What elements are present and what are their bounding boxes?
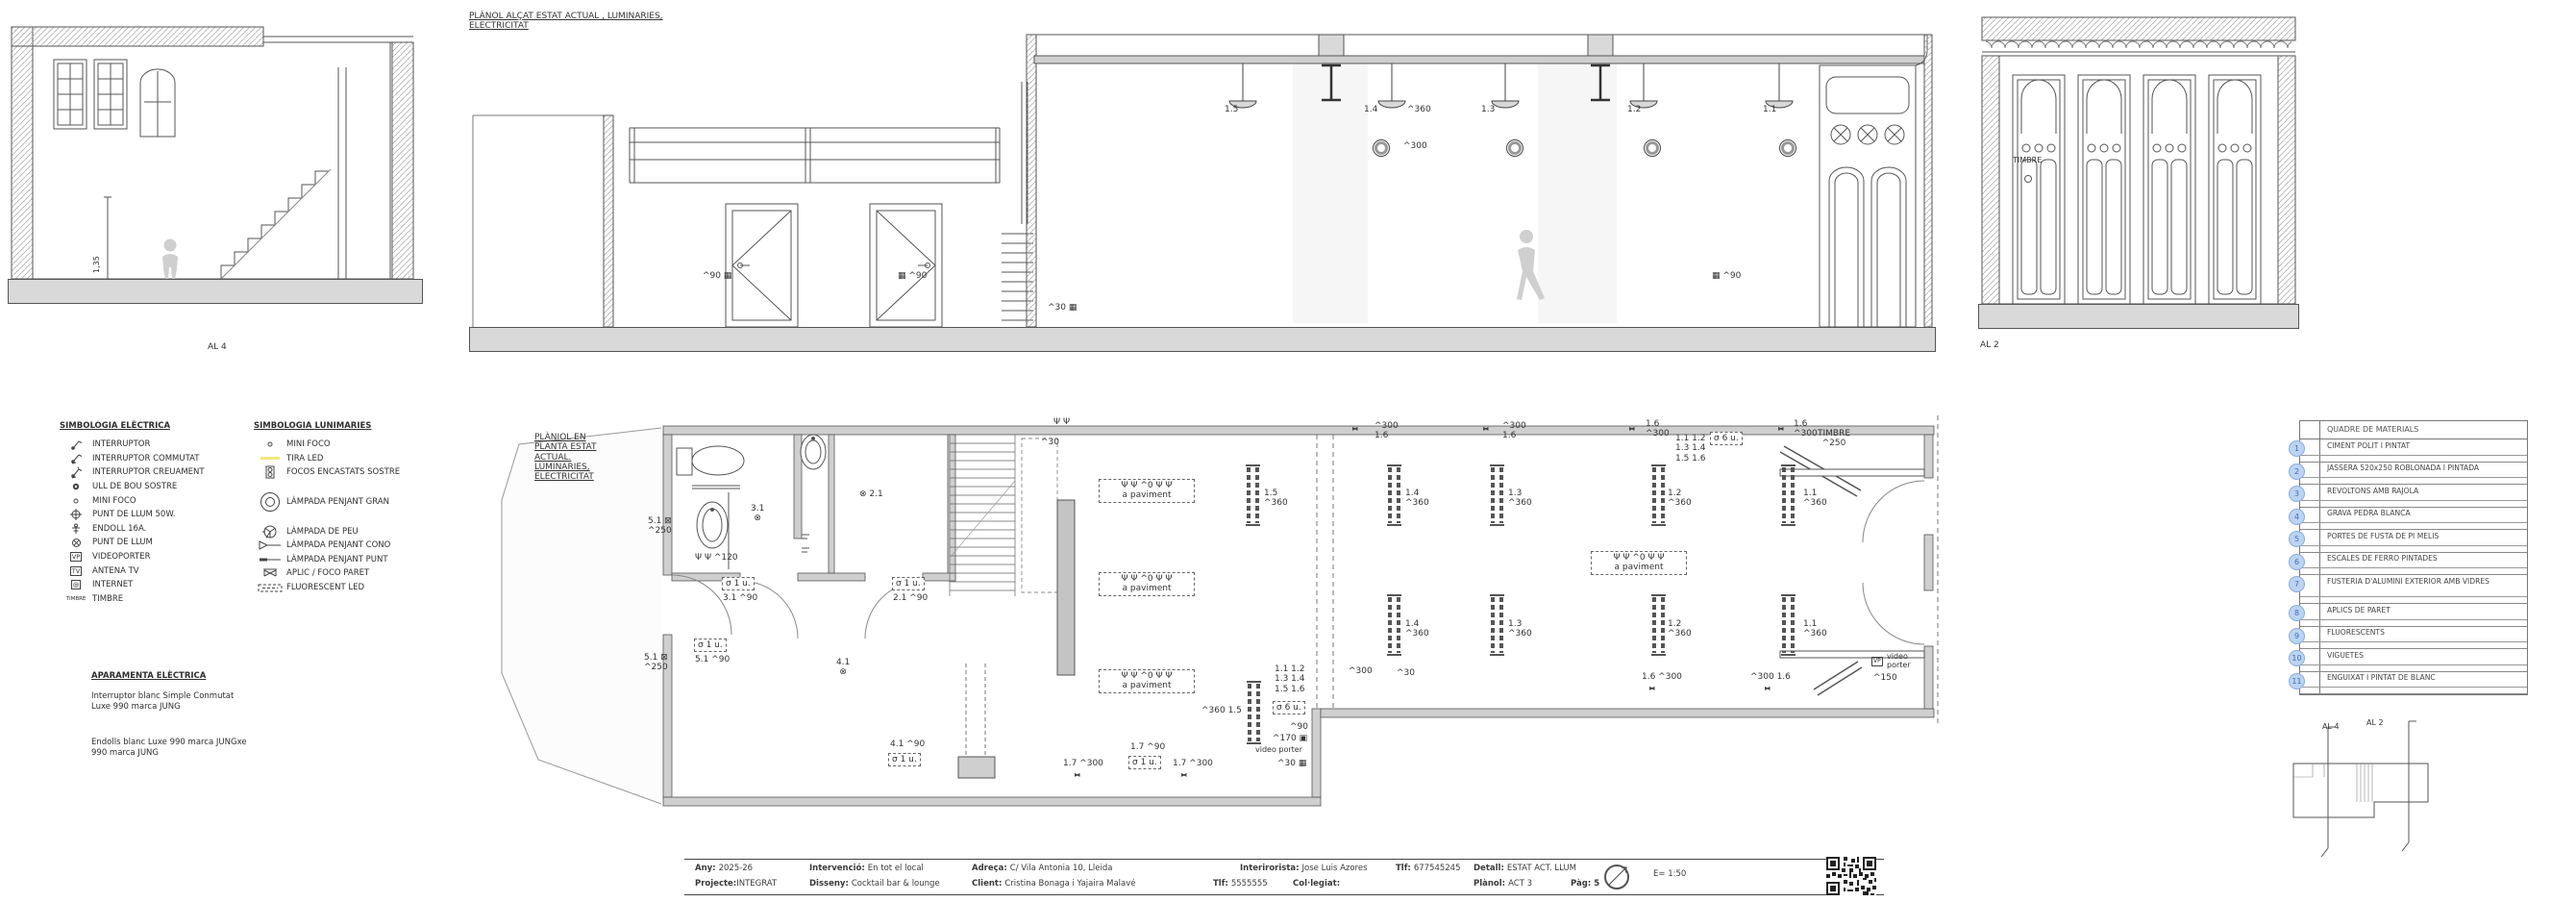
plan-annotation: ^30 bbox=[1397, 668, 1415, 678]
sheet-annotation: TIMBRE bbox=[2013, 156, 2042, 164]
aparamenta-paragraph-1: Interruptor blanc Simple Conmutat Luxe 9… bbox=[91, 691, 255, 713]
sheet-annotation: AL 2 bbox=[1980, 340, 1999, 350]
material-number-badge: 10 bbox=[2289, 650, 2305, 666]
door-1 bbox=[726, 204, 798, 327]
plan-annotation: ^360 1.5 bbox=[1201, 706, 1242, 715]
sheet-annotation: 1.2 bbox=[1627, 105, 1641, 114]
section-line-al4 bbox=[2321, 727, 2336, 857]
plan-annotation: 1.2 ^360 bbox=[1668, 489, 1692, 509]
materials-table-title: QUADRE DE MATERIALS bbox=[2300, 421, 2527, 439]
opening-band-1 bbox=[1293, 63, 1368, 323]
fluorescent-strip-symbol bbox=[1246, 464, 1260, 526]
fluorescent-strip-symbol bbox=[1490, 594, 1504, 656]
sheet-annotation: ^300 bbox=[1403, 141, 1427, 151]
title-block: Any:2025-26 Projecte:INTEGRAT Intervenci… bbox=[684, 859, 1884, 895]
plan-annotation: Ψ Ψ ^0 Ψ Ψ a paviment bbox=[1099, 669, 1195, 693]
legend-item-label: LÀMPADA PENJANT CONO bbox=[286, 540, 390, 550]
legend-item-label: ULL DE BOU SOSTRE bbox=[92, 482, 177, 491]
plan-annotation: 1.2 ^360 bbox=[1668, 619, 1692, 639]
sheet-annotation: ^90 ▦ bbox=[703, 271, 731, 281]
legend-item: INTERRUPTOR CREUAMENT bbox=[60, 465, 205, 480]
sheet-annotation: ^30 ▦ bbox=[1048, 303, 1077, 313]
fluorescent-strip-symbol bbox=[1387, 464, 1401, 526]
pier-left bbox=[1982, 56, 1999, 304]
sheet-annotation: 1,35 bbox=[92, 256, 101, 273]
plan-annotation: ▸◂ bbox=[1352, 424, 1355, 433]
material-label: ENGUIXAT I PINTAT DE BLANC bbox=[2327, 674, 2523, 682]
legend-item: PUNT DE LLUM bbox=[60, 536, 205, 550]
wall-right-pier bbox=[392, 42, 413, 279]
material-label: PORTES DE FUSTA DE PI MELIS bbox=[2327, 533, 2523, 540]
plan-annotation: TIMBRE ^250 bbox=[1818, 429, 1850, 449]
drawing-sheet: SIMBOLOGIA ELÈCTRICA INTERRUPTOR INTERRU… bbox=[0, 0, 2576, 902]
legend-item-label: MINI FOCO bbox=[286, 439, 331, 449]
pier-right bbox=[2278, 56, 2295, 304]
material-row: 8 APLICS DE PARET bbox=[2300, 604, 2527, 627]
door-2 bbox=[870, 204, 942, 327]
material-number-badge: 7 bbox=[2289, 576, 2305, 592]
legend-electric-title: SIMBOLOGIA ELÈCTRICA bbox=[60, 421, 205, 431]
material-row: 1 CIMENT POLIT I PINTAT bbox=[2300, 439, 2527, 463]
material-row: 7 FUSTERIA D'ALUMINI EXTERIOR AMB VIDRES bbox=[2300, 575, 2527, 604]
plan-annotation: 1.7 ^300 bbox=[1063, 759, 1103, 768]
legend-item-label: INTERNET bbox=[92, 580, 133, 589]
section-line-al2 bbox=[2402, 721, 2416, 851]
plan-annotation: Ψ Ψ ^0 Ψ Ψ a paviment bbox=[1099, 572, 1195, 596]
north-arrow-icon bbox=[1602, 863, 1631, 891]
legend-item-label: VIDEOPORTER bbox=[92, 552, 151, 562]
plan-annotation: σ 1 u. bbox=[892, 577, 925, 590]
material-row: 6 ESCALES DE FERRO PINTADES bbox=[2300, 553, 2527, 576]
party-wall-boundary bbox=[502, 428, 661, 804]
plan-annotation: Ψ Ψ ^0 Ψ Ψ a paviment bbox=[1591, 551, 1687, 575]
cornice-lines bbox=[1982, 52, 2295, 56]
floor-plan-drawing bbox=[498, 413, 1940, 817]
plan-annotation: 3.1 ^90 bbox=[723, 593, 757, 603]
key-plan-stairs bbox=[2357, 764, 2372, 802]
fluorescent-strip-symbol bbox=[1247, 681, 1261, 744]
plan-annotation: 5.1 ⊠ ^250 bbox=[644, 653, 668, 673]
plan-annotation: video porter bbox=[1255, 745, 1302, 754]
material-row: 11 ENGUIXAT I PINTAT DE BLANC bbox=[2300, 672, 2527, 695]
sheet-annotation: 1.4 bbox=[1364, 105, 1377, 114]
plan-annotation: 4.1 ^90 bbox=[890, 739, 925, 749]
legend-item: INTERRUPTOR COMMUTAT bbox=[60, 452, 205, 466]
titleblock-tlf1: Tlf:5555555 bbox=[1213, 879, 1268, 889]
section-drawing bbox=[469, 27, 1936, 327]
plan-annotation: 1.1 1.2 1.3 1.4 1.5 1.6 bbox=[1675, 434, 1706, 464]
legend-item-label: PUNT DE LLUM bbox=[92, 538, 153, 547]
wall-cut-right bbox=[1924, 35, 1932, 327]
roof-hatch bbox=[1982, 17, 2295, 40]
legend-item: MINI FOCO bbox=[60, 493, 205, 508]
sheet-annotation: AL 2 bbox=[2366, 718, 2384, 727]
legend-item-label: ENDOLL 16A. bbox=[92, 524, 146, 534]
plan-annotation: 2.1 ^90 bbox=[893, 593, 928, 603]
plan-annotation: ▸◂ bbox=[1483, 424, 1486, 433]
legend-item: TV ANTENA TV bbox=[60, 564, 205, 578]
sheet-annotation: PLÀNOL ALÇAT ESTAT ACTUAL , LUMINARIES, … bbox=[469, 12, 663, 32]
fluorescent-strip-symbol bbox=[1651, 594, 1666, 656]
sheet-annotation: AL 4 bbox=[2322, 722, 2340, 731]
plan-annotation: 4.1 ⊗ bbox=[836, 658, 850, 678]
stairs-plan bbox=[950, 435, 1057, 596]
material-label: FUSTERIA D'ALUMINI EXTERIOR AMB VIDRES bbox=[2327, 578, 2523, 586]
key-plan-rooms bbox=[2293, 764, 2324, 777]
legend-item: INTERRUPTOR bbox=[60, 438, 205, 452]
titleblock-projecte: Projecte:INTEGRAT bbox=[695, 879, 777, 889]
material-label: ESCALES DE FERRO PINTADES bbox=[2327, 555, 2523, 563]
stair-base-wall bbox=[958, 757, 995, 778]
plan-annotation: ^90 bbox=[1290, 722, 1308, 732]
material-row: 10 VIGUETES bbox=[2300, 649, 2527, 672]
legend-item-label: LÀMPADA PENJANT PUNT bbox=[286, 555, 388, 564]
plan-annotation: 1.4 ^360 bbox=[1405, 619, 1429, 639]
material-label: GRAVA PEDRA BLANCA bbox=[2327, 510, 2523, 517]
roof-tiles bbox=[1986, 40, 2291, 52]
plan-annotation: ^170 ▣ bbox=[1273, 734, 1307, 743]
plan-annotation: 5.1 ⊠ ^250 bbox=[648, 516, 672, 537]
titleblock-any: Any:2025-26 bbox=[695, 864, 753, 873]
fluorescent-strip-symbol bbox=[1387, 594, 1401, 656]
sheet-annotation: 1.3 bbox=[1481, 105, 1495, 114]
plan-annotation: video porter bbox=[1887, 652, 1911, 669]
plan-annotation: 1.7 ^90 bbox=[1130, 742, 1165, 752]
plan-annotation: 1.1 ^360 bbox=[1803, 619, 1827, 639]
legend-item: FOCOS ENCASTATS SOSTRE bbox=[254, 465, 400, 480]
material-row: 5 PORTES DE FUSTA DE PI MELIS bbox=[2300, 530, 2527, 553]
material-label: JASSERA 520x250 ROBLONADA I PINTADA bbox=[2327, 464, 2523, 472]
ground-strip-al2 bbox=[1978, 304, 2299, 329]
plan-annotation: 1.6 ^300 bbox=[1646, 419, 1670, 439]
plan-annotation: ▸◂ bbox=[1181, 770, 1184, 779]
legend-item-label: MINI FOCO bbox=[92, 496, 136, 506]
material-row: 3 REVOLTONS AMB RAJOLA bbox=[2300, 485, 2527, 508]
plan-annotation: 1.1 ^360 bbox=[1803, 489, 1827, 509]
material-label: APLICS DE PARET bbox=[2327, 607, 2523, 614]
plan-annotation: σ 1 u. bbox=[1128, 756, 1161, 769]
legend-lighting: SIMBOLOGIA LUNIMARIES MINI FOCO TIRA LED… bbox=[254, 421, 400, 594]
plan-annotation: ^300 1.6 bbox=[1502, 421, 1526, 441]
material-number-badge: 9 bbox=[2289, 628, 2305, 644]
plan-annotation: 1.6 ^300 bbox=[1794, 419, 1818, 439]
titleblock-tlf2: Tlf:677545245 bbox=[1396, 864, 1460, 873]
legend-item-label: APLIC / FOCO PARET bbox=[286, 568, 369, 578]
tv-box-icon: TV bbox=[60, 566, 92, 576]
dimension-line bbox=[104, 197, 111, 279]
plan-annotation: ^30 bbox=[1041, 438, 1059, 447]
plan-annotation: σ 1 u. bbox=[722, 577, 755, 590]
plan-annotation: ^300 bbox=[1349, 666, 1373, 676]
window-left bbox=[54, 60, 87, 129]
beam-seat-2 bbox=[1588, 35, 1613, 56]
material-number-badge: 4 bbox=[2289, 509, 2305, 525]
tira-led-icon bbox=[254, 457, 286, 460]
plan-annotation: PLÀNIOL EN PLANTA ESTAT ACTUAL. LUMINARI… bbox=[534, 433, 597, 483]
material-number-badge: 1 bbox=[2289, 440, 2305, 457]
key-plan bbox=[2286, 714, 2488, 863]
legend-item: LÀMPADA DE PEU bbox=[254, 524, 400, 539]
legend-item: TIMBRE TIMBRE bbox=[60, 592, 205, 607]
bathroom-fixtures bbox=[677, 435, 826, 569]
wall-cut-mid bbox=[1027, 35, 1036, 327]
plan-annotation: σ 6 u. bbox=[1273, 701, 1305, 714]
fluorescent-strip-symbol bbox=[1781, 594, 1796, 656]
stairs bbox=[221, 67, 346, 279]
plan-annotation: ^300 1.6 bbox=[1750, 672, 1791, 682]
sheet-annotation: 1.1 bbox=[1763, 105, 1776, 114]
plan-annotation: 1.5 ^360 bbox=[1264, 489, 1288, 509]
legend-item: MINI FOCO bbox=[254, 438, 400, 452]
plan-annotation: σ 6 u. bbox=[1710, 432, 1743, 445]
legend-item-label: TIMBRE bbox=[92, 594, 123, 604]
roof-band bbox=[12, 27, 263, 46]
ceiling-beam bbox=[1034, 56, 1924, 63]
legend-item: VP VIDEOPORTER bbox=[60, 550, 205, 564]
plan-annotation: 3.1 ⊗ bbox=[751, 504, 764, 524]
beam-line bbox=[263, 37, 413, 42]
at-box-icon: @ bbox=[60, 580, 92, 589]
timbre-text-icon: TIMBRE bbox=[60, 596, 92, 602]
material-label: CIMENT POLIT I PINTAT bbox=[2327, 442, 2523, 450]
material-label: REVOLTONS AMB RAJOLA bbox=[2327, 488, 2523, 495]
plan-annotation: Ψ Ψ ^0 Ψ Ψ a paviment bbox=[1099, 479, 1195, 503]
titleblock-client: Client:Cristina Bonaga i Yajaira Malavé bbox=[972, 879, 1136, 889]
sheet-annotation: ^360 bbox=[1407, 105, 1431, 114]
legend-item-label: INTERRUPTOR bbox=[92, 439, 150, 449]
legend-item: APLIC / FOCO PARET bbox=[254, 566, 400, 581]
ground-strip-section bbox=[469, 327, 1936, 352]
titleblock-collegiat: Col·legiat: bbox=[1293, 879, 1340, 889]
plan-annotation: ▸◂ bbox=[1075, 770, 1077, 779]
legend-item: PUNT DE LLUM 50W. bbox=[60, 508, 205, 522]
material-row: 9 FLUORESCENTS bbox=[2300, 627, 2527, 650]
titleblock-pag: Pàg:5 bbox=[1571, 879, 1599, 889]
legend-item: FLUORESCENT LED bbox=[254, 581, 400, 595]
arch-window bbox=[140, 69, 175, 137]
bar-counter bbox=[1057, 500, 1075, 675]
fluorescent-strip-symbol bbox=[1651, 464, 1666, 526]
plan-annotation: ^150 bbox=[1873, 673, 1897, 683]
sheet-annotation: ▦ ^90 bbox=[1712, 271, 1741, 281]
material-row: 4 GRAVA PEDRA BLANCA bbox=[2300, 508, 2527, 531]
overhead-dashed-lines bbox=[966, 664, 985, 757]
material-row: 2 JASSERA 520x250 ROBLONADA I PINTADA bbox=[2300, 463, 2527, 486]
plan-annotation: 1.4 ^360 bbox=[1405, 489, 1429, 509]
material-label: FLUORESCENTS bbox=[2327, 629, 2523, 637]
aparamenta-block: APARAMENTA ELÈCTRICA Interruptor blanc S… bbox=[91, 671, 255, 784]
materials-table: QUADRE DE MATERIALS 1 CIMENT POLIT I PIN… bbox=[2299, 420, 2528, 695]
legend-lighting-title: SIMBOLOGIA LUNIMARIES bbox=[254, 421, 400, 431]
plan-annotation: ▸◂ bbox=[1649, 684, 1652, 692]
legend-item: LÀMPADA PENJANT GRAN bbox=[254, 495, 400, 510]
elevation-al4-drawing bbox=[8, 10, 423, 279]
sheet-annotation: AL 4 bbox=[208, 342, 227, 352]
titleblock-interiorista: Interirorista:Jose Luis Azores bbox=[1240, 864, 1368, 873]
scale-label: E= 1:50 bbox=[1653, 869, 1686, 879]
plan-annotation: σ 1 u. bbox=[694, 639, 727, 652]
alignment-dashed-lines bbox=[1317, 435, 1333, 712]
legend-item: LÀMPADA PENJANT PUNT bbox=[254, 553, 400, 567]
beam-seat-1 bbox=[1319, 35, 1344, 56]
legend-item-label: PUNT DE LLUM 50W. bbox=[92, 510, 175, 519]
plan-annotation: σ 1 u. bbox=[888, 753, 921, 766]
open-door-leaf-top bbox=[1780, 469, 1924, 476]
ground-strip-al4 bbox=[8, 279, 423, 304]
plan-annotation: Ψ Ψ bbox=[1053, 417, 1070, 427]
titleblock-intervencio: Intervenció:En tot el local bbox=[809, 864, 924, 873]
door-swing-arcs bbox=[672, 481, 1924, 644]
window-mid bbox=[94, 60, 127, 129]
legend-item-label: INTERRUPTOR COMMUTAT bbox=[92, 454, 199, 464]
plan-annotation: ^300 1.6 bbox=[1375, 421, 1399, 441]
legend-item-label: LÀMPADA PENJANT GRAN bbox=[286, 497, 389, 507]
fluorescent-strip-symbol bbox=[1781, 464, 1796, 526]
person-silhouette bbox=[162, 239, 178, 280]
opening-band-2 bbox=[1538, 63, 1617, 323]
plan-annotation: ▸◂ bbox=[1629, 424, 1632, 433]
plan-annotation: ▸◂ bbox=[1765, 684, 1768, 692]
plan-annotation: ^30 ▦ bbox=[1277, 759, 1306, 768]
aparamenta-paragraph-2: Endolls blanc Luxe 990 marca JUNGxe 990 … bbox=[91, 738, 255, 759]
titleblock-planol: Plànol:ACT 3 bbox=[1474, 879, 1532, 889]
material-number-badge: 5 bbox=[2289, 531, 2305, 547]
legend-item: TIRA LED bbox=[254, 452, 400, 466]
legend-item-label: INTERRUPTOR CREUAMENT bbox=[92, 467, 205, 477]
material-number-badge: 3 bbox=[2289, 486, 2305, 502]
legend-item-label: TIRA LED bbox=[286, 454, 323, 464]
qr-code bbox=[1826, 857, 1876, 895]
wall-cut-left bbox=[604, 115, 613, 327]
plan-annotation: 1.6 ^300 bbox=[1642, 672, 1682, 682]
plan-annotation: ⊗ 2.1 bbox=[859, 489, 883, 499]
legend-item: ENDOLL 16A. bbox=[60, 522, 205, 537]
legend-item: ULL DE BOU SOSTRE bbox=[60, 480, 205, 494]
material-number-badge: 2 bbox=[2289, 464, 2305, 480]
plan-annotation: 1.3 ^360 bbox=[1508, 619, 1532, 639]
titleblock-detall: Detall:ESTAT ACT. LLUM bbox=[1474, 864, 1576, 873]
plan-annotation: ▸◂ bbox=[1778, 424, 1781, 433]
decorative-door bbox=[1820, 65, 1916, 327]
titleblock-adreca: Adreça:C/ Vila Antonia 10, Lleida bbox=[972, 864, 1112, 873]
sheet-annotation: ▦ ^90 bbox=[898, 271, 927, 281]
mezzanine-railing bbox=[630, 128, 1000, 183]
material-number-badge: 8 bbox=[2289, 605, 2305, 621]
legend-item: LÀMPADA PENJANT CONO bbox=[254, 539, 400, 553]
plan-annotation: VP bbox=[1871, 657, 1883, 666]
void-outline bbox=[473, 115, 604, 327]
plan-annotation: 1.3 ^360 bbox=[1508, 489, 1532, 509]
legend-item: @ INTERNET bbox=[60, 578, 205, 592]
fluorescent-strip-symbol bbox=[1490, 464, 1504, 526]
plan-annotation: 5.1 ^90 bbox=[695, 655, 730, 664]
plan-annotation: Ψ Ψ ^120 bbox=[695, 553, 738, 563]
plan-annotation: 1.1 1.2 1.3 1.4 1.5 1.6 bbox=[1275, 664, 1305, 694]
aparamenta-title: APARAMENTA ELÈCTRICA bbox=[91, 671, 255, 682]
legend-item-label: LÀMPADA DE PEU bbox=[286, 527, 359, 537]
wall-left-pier bbox=[12, 27, 33, 279]
legend-item-label: ANTENA TV bbox=[92, 566, 139, 576]
sheet-annotation: 1.5 bbox=[1225, 105, 1238, 114]
vp-box-icon: VP bbox=[60, 552, 92, 562]
legend-electric: SIMBOLOGIA ELÈCTRICA INTERRUPTOR INTERRU… bbox=[60, 421, 205, 606]
legend-item-label: FOCOS ENCASTATS SOSTRE bbox=[286, 467, 400, 477]
material-number-badge: 11 bbox=[2289, 673, 2305, 689]
titleblock-disseny: Disseny:Cocktail bar & lounge bbox=[809, 879, 940, 889]
material-label: VIGUETES bbox=[2327, 652, 2523, 660]
plan-annotation: 1.7 ^300 bbox=[1173, 759, 1213, 768]
legend-item-label: FLUORESCENT LED bbox=[286, 583, 364, 592]
material-number-badge: 6 bbox=[2289, 554, 2305, 570]
